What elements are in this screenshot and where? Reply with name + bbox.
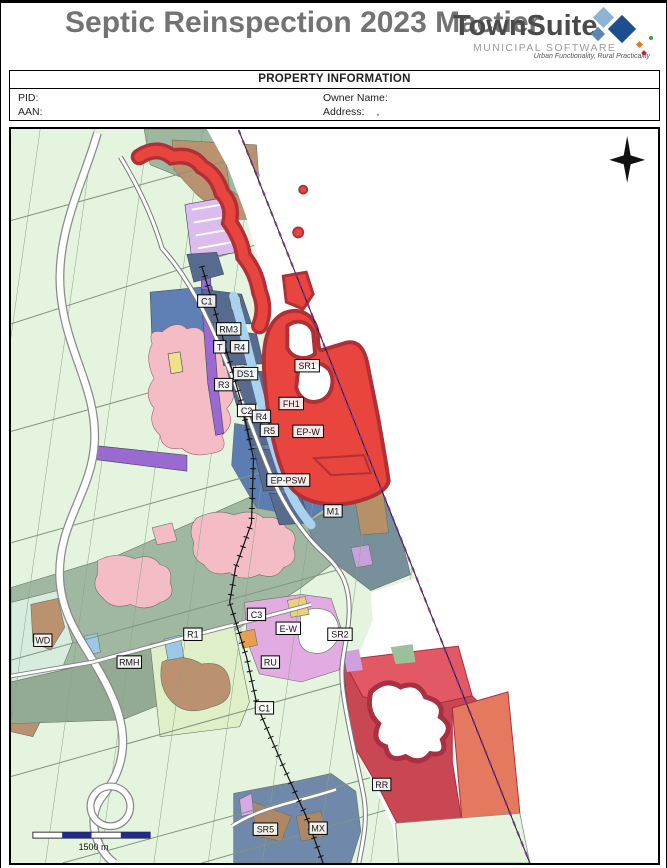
zone-label: RMH — [117, 656, 141, 668]
svg-text:WD: WD — [35, 636, 50, 646]
svg-text:SR1: SR1 — [298, 361, 315, 371]
svg-text:EP-W: EP-W — [296, 427, 320, 437]
svg-text:R5: R5 — [264, 426, 275, 436]
zoning-map-frame: 1500 m C1RM3TR4DS1R3C2R4R5SR1FH1EP-WEP-P… — [9, 127, 660, 865]
svg-text:C2: C2 — [241, 406, 252, 416]
svg-text:R1: R1 — [187, 630, 198, 640]
property-information-title: PROPERTY INFORMATION — [10, 71, 659, 89]
field-pid: PID: — [10, 91, 315, 105]
zone-label: C3 — [247, 608, 265, 620]
logo-dot-icon — [649, 36, 653, 40]
zone-label: T — [214, 341, 226, 353]
zone-label: FH1 — [279, 397, 303, 409]
zone-label: RR — [373, 778, 391, 790]
logo-tagline: Urban Functionality, Rural Practicality — [534, 53, 650, 60]
zone-label: R3 — [215, 378, 233, 390]
svg-text:SR5: SR5 — [257, 825, 274, 835]
property-information-panel: PROPERTY INFORMATION PID: Owner Name: AA… — [9, 70, 660, 121]
logo-dot-icon — [636, 41, 643, 48]
zone-label: R1 — [184, 628, 202, 640]
svg-text:R3: R3 — [218, 380, 229, 390]
field-owner-name: Owner Name: — [315, 91, 659, 105]
zone-label: E-W — [276, 622, 300, 634]
svg-text:RU: RU — [264, 658, 277, 668]
zone-label: RU — [261, 656, 279, 668]
townsuite-logo-text: TownSuite® — [453, 10, 606, 43]
report-page: Septic Reinspection 2023 Mactier TownSui… — [0, 0, 667, 868]
svg-text:C3: C3 — [251, 610, 262, 620]
svg-text:SR2: SR2 — [331, 630, 348, 640]
svg-text:E-W: E-W — [280, 624, 298, 634]
zoning-map: 1500 m C1RM3TR4DS1R3C2R4R5SR1FH1EP-WEP-P… — [11, 129, 658, 863]
svg-text:T: T — [217, 342, 223, 352]
zone-label: R4 — [230, 341, 248, 353]
field-address: Address:, — [315, 105, 659, 119]
svg-text:FH1: FH1 — [283, 399, 300, 409]
svg-text:RM3: RM3 — [219, 324, 238, 334]
zone-label: C1 — [255, 702, 273, 714]
svg-text:EP-PSW: EP-PSW — [271, 476, 307, 486]
zone-label: EP-PSW — [267, 474, 310, 486]
zone-label: DS1 — [233, 367, 257, 379]
zone-label: R5 — [260, 424, 278, 436]
svg-text:MX: MX — [311, 824, 324, 834]
zone-label: C1 — [198, 295, 216, 307]
svg-text:R4: R4 — [256, 412, 267, 422]
svg-text:C1: C1 — [259, 703, 270, 713]
zone-label: R4 — [252, 410, 270, 422]
svg-text:C1: C1 — [201, 297, 212, 307]
scale-bar-label: 1500 m — [79, 842, 109, 852]
zone-label: WD — [34, 634, 52, 646]
zone-label: SR2 — [328, 628, 352, 640]
svg-text:M1: M1 — [327, 506, 339, 516]
svg-text:RMH: RMH — [119, 658, 139, 668]
zone-label: SR5 — [253, 823, 277, 835]
svg-text:DS1: DS1 — [237, 369, 254, 379]
zone-label: M1 — [324, 505, 342, 517]
field-aan: AAN: — [10, 105, 315, 119]
svg-text:R4: R4 — [234, 342, 245, 352]
zone-label: SR1 — [295, 359, 319, 371]
svg-text:RR: RR — [375, 780, 388, 790]
zone-label: EP-W — [293, 425, 324, 437]
zone-label: RM3 — [216, 323, 240, 335]
zone-label: MX — [309, 822, 327, 834]
property-information-fields: PID: Owner Name: AAN: Address:, — [10, 89, 659, 119]
